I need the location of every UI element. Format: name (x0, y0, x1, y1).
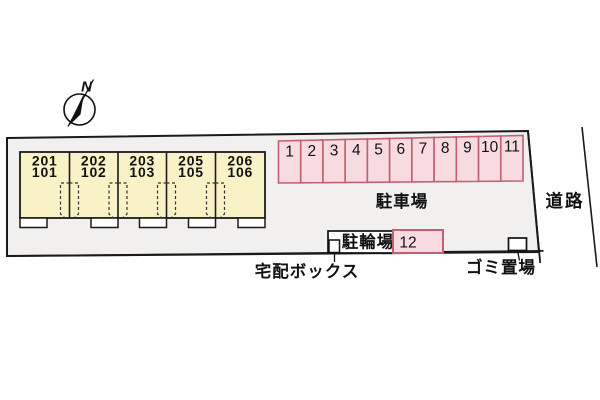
site-plan: 道路 N 201101202102203103205105206106 1234… (0, 0, 600, 400)
bicycle-parking-label: 駐輪場 (342, 232, 395, 252)
unit-lower-102: 102 (81, 164, 107, 180)
parking-label: 駐車場 (376, 191, 429, 211)
porch-step (140, 218, 167, 228)
parking-space-number-8: 8 (441, 140, 450, 157)
delivery-box-label: 宅配ボックス (255, 261, 360, 281)
unit-lower-101: 101 (32, 164, 58, 180)
road-label: 道路 (546, 191, 585, 211)
garbage-area-label: ゴミ置場 (466, 257, 536, 277)
unit-lower-105: 105 (178, 164, 204, 180)
porch-step (189, 218, 216, 228)
parking-space-number-3: 3 (330, 142, 339, 159)
compass-n-label: N (81, 79, 93, 96)
parking-space-number-7: 7 (419, 140, 428, 157)
unit-lower-103: 103 (129, 164, 155, 180)
parking-space-number-4: 4 (352, 142, 361, 159)
parking-space-12-label: 12 (399, 235, 416, 252)
parking-space-number-11: 11 (504, 138, 520, 155)
parking-space-number-1: 1 (285, 143, 294, 160)
porch-step (20, 218, 47, 228)
porch-step (238, 218, 265, 228)
compass: N (64, 79, 95, 127)
porch-step (91, 218, 118, 228)
parking-space-number-2: 2 (308, 143, 317, 160)
parking-space-number-6: 6 (396, 141, 405, 158)
garbage-area-box (509, 238, 527, 251)
parking-space-number-10: 10 (481, 139, 499, 156)
parking-space-number-9: 9 (463, 139, 472, 156)
unit-lower-106: 106 (227, 164, 253, 180)
delivery-box (329, 240, 340, 253)
parking-spaces: 1234567891011 (279, 136, 524, 184)
parking-space-number-5: 5 (374, 141, 383, 158)
